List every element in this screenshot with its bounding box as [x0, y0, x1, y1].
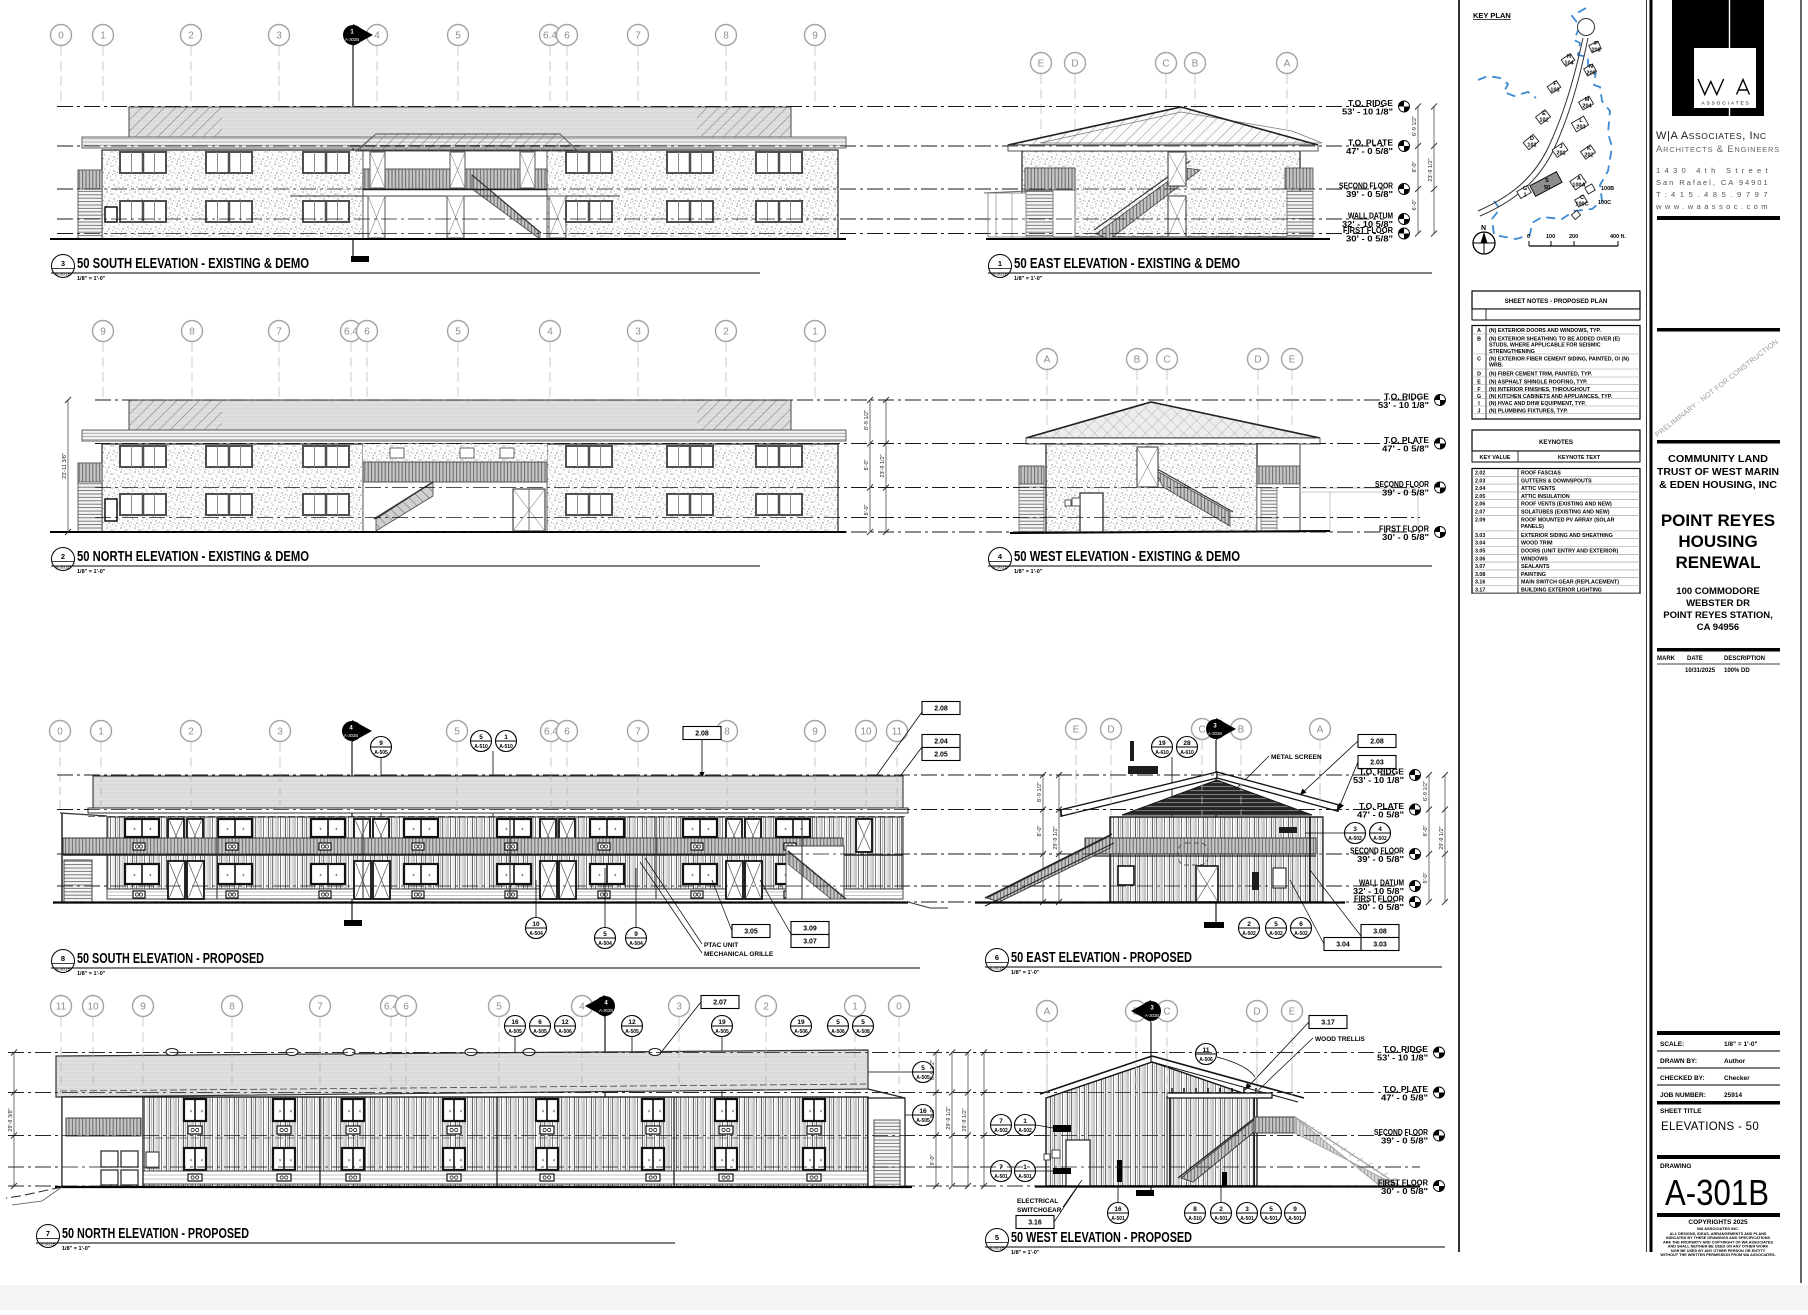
svg-text:7: 7: [635, 727, 641, 738]
svg-text:MECHANICAL GRILLE: MECHANICAL GRILLE: [704, 951, 774, 958]
svg-text:11: 11: [1203, 1047, 1210, 1054]
svg-text:D: D: [1071, 59, 1078, 70]
svg-text:Author: Author: [1724, 1058, 1746, 1065]
svg-text:A-506: A-506: [558, 1029, 572, 1035]
svg-text:10/31/2025: 10/31/2025: [1685, 668, 1716, 674]
svg-text:W|A ASSOCIATES, INC: W|A ASSOCIATES, INC: [1656, 130, 1767, 142]
svg-text:39' - 0 5/8": 39' - 0 5/8": [1357, 855, 1404, 864]
svg-text:2: 2: [1247, 921, 1251, 928]
svg-text:ATTIC INSULATION: ATTIC INSULATION: [1521, 494, 1570, 500]
svg-text:Checker: Checker: [1724, 1075, 1750, 1082]
svg-text:WRB.: WRB.: [1489, 363, 1504, 369]
svg-text:16: 16: [919, 1108, 927, 1115]
svg-text:203: 203: [1576, 125, 1585, 131]
svg-text:19: 19: [1158, 740, 1166, 747]
svg-text:50 NORTH ELEVATION - PROPOSED: 50 NORTH ELEVATION - PROPOSED: [62, 1226, 249, 1242]
svg-text:2: 2: [763, 1002, 769, 1013]
svg-text:MARK: MARK: [1657, 656, 1676, 662]
svg-text:A-501: A-501: [1018, 1174, 1032, 1180]
svg-text:8'-0": 8'-0": [864, 504, 870, 515]
svg-text:KEYNOTES: KEYNOTES: [1539, 439, 1573, 446]
svg-text:6: 6: [538, 1019, 542, 1026]
svg-text:2.04: 2.04: [934, 739, 948, 746]
svg-text:5: 5: [995, 1233, 999, 1242]
svg-text:2.07: 2.07: [1475, 510, 1485, 516]
svg-text:5: 5: [455, 31, 461, 42]
svg-text:COPYRIGHTS 2025: COPYRIGHTS 2025: [1688, 1219, 1748, 1226]
svg-text:E: E: [1073, 725, 1080, 736]
svg-text:A: A: [1577, 176, 1581, 182]
svg-text:50: 50: [1544, 185, 1550, 191]
svg-text:3.03: 3.03: [1373, 942, 1387, 949]
svg-text:3: 3: [1245, 1206, 1249, 1213]
svg-text:3.07: 3.07: [1475, 564, 1485, 570]
svg-text:A-502: A-502: [1269, 931, 1283, 937]
svg-text:202: 202: [1584, 153, 1593, 159]
svg-text:1/8" = 1'-0": 1/8" = 1'-0": [1724, 1041, 1758, 1048]
svg-text:G: G: [1477, 394, 1481, 400]
svg-text:(N) EXTERIOR DOORS AND WINDOWS: (N) EXTERIOR DOORS AND WINDOWS, TYP.: [1489, 328, 1601, 334]
svg-text:A-501: A-501: [1288, 1216, 1302, 1222]
svg-text:A-505: A-505: [916, 1118, 930, 1124]
svg-text:A-506: A-506: [794, 1029, 808, 1035]
svg-text:A-505: A-505: [374, 750, 388, 756]
svg-text:50 WEST ELEVATION - PROPOSED: 50 WEST ELEVATION - PROPOSED: [1011, 1230, 1192, 1246]
svg-text:1/8" = 1'-0": 1/8" = 1'-0": [77, 569, 106, 575]
svg-text:A-505: A-505: [508, 1029, 522, 1035]
svg-text:204: 204: [1582, 104, 1592, 110]
svg-text:A-510: A-510: [474, 744, 488, 750]
svg-text:1/8" = 1'-0": 1/8" = 1'-0": [1011, 970, 1040, 976]
svg-text:ELEVATIONS - 50: ELEVATIONS - 50: [1661, 1121, 1759, 1133]
svg-text:A-610: A-610: [1180, 750, 1194, 756]
svg-text:50 WEST ELEVATION - EXISTING &: 50 WEST ELEVATION - EXISTING & DEMO: [1014, 549, 1240, 565]
svg-text:100% DD: 100% DD: [1724, 668, 1750, 674]
svg-text:208: 208: [1591, 48, 1600, 54]
svg-text:9: 9: [1293, 1206, 1297, 1213]
svg-text:400 ft.: 400 ft.: [1610, 234, 1626, 240]
svg-text:6'-9 1/2": 6'-9 1/2": [1423, 781, 1429, 801]
svg-text:8: 8: [61, 954, 65, 963]
svg-text:A-501: A-501: [1111, 1216, 1125, 1222]
svg-text:WINDOWS: WINDOWS: [1521, 556, 1548, 562]
svg-text:E: E: [1542, 111, 1546, 117]
svg-text:A-302B: A-302B: [1208, 731, 1222, 736]
svg-text:7: 7: [999, 1118, 1003, 1125]
svg-text:39' - 0 5/8": 39' - 0 5/8": [1346, 190, 1393, 199]
svg-text:COMMUNITY LAND: COMMUNITY LAND: [1668, 453, 1768, 465]
svg-text:29'-9 1/2": 29'-9 1/2": [1439, 826, 1445, 849]
svg-text:ASSOCIATES: ASSOCIATES: [1701, 101, 1750, 107]
svg-text:A-508: A-508: [856, 1029, 870, 1035]
svg-text:A-510: A-510: [1188, 1216, 1202, 1222]
svg-text:2: 2: [61, 552, 65, 561]
svg-text:A-302B: A-302B: [345, 37, 359, 42]
svg-text:23'-9 1/2": 23'-9 1/2": [1428, 158, 1434, 181]
svg-text:2: 2: [188, 727, 194, 738]
svg-text:5: 5: [1269, 1206, 1273, 1213]
svg-text:PANELS): PANELS): [1521, 524, 1544, 530]
svg-text:A-504: A-504: [598, 941, 612, 947]
svg-text:DOORS (UNIT ENTRY AND EXTERIOR: DOORS (UNIT ENTRY AND EXTERIOR): [1521, 549, 1618, 555]
svg-text:A-505: A-505: [533, 1029, 547, 1035]
svg-text:2.05: 2.05: [1475, 494, 1485, 500]
svg-text:9: 9: [812, 727, 818, 738]
svg-text:11: 11: [56, 1002, 67, 1013]
svg-text:KEYNOTE TEXT: KEYNOTE TEXT: [1558, 455, 1601, 461]
svg-text:A-501: A-501: [1264, 1216, 1278, 1222]
svg-text:7: 7: [635, 31, 641, 42]
svg-text:23'-9 1/2": 23'-9 1/2": [880, 454, 886, 477]
svg-text:N: N: [1589, 64, 1593, 70]
svg-text:100C: 100C: [1598, 200, 1611, 206]
svg-text:39' - 0 5/8": 39' - 0 5/8": [1381, 1137, 1428, 1146]
svg-text:9'-0": 9'-0": [930, 1154, 936, 1165]
svg-text:5: 5: [496, 1002, 502, 1013]
svg-text:8: 8: [723, 31, 729, 42]
svg-text:2.04: 2.04: [1475, 486, 1485, 492]
svg-text:6'-0": 6'-0": [1412, 199, 1418, 210]
svg-text:0: 0: [57, 727, 63, 738]
svg-text:2.06: 2.06: [1475, 502, 1485, 508]
svg-text:53' - 10 1/8": 53' - 10 1/8": [1377, 1054, 1428, 1063]
svg-text:SHEET TITLE: SHEET TITLE: [1660, 1108, 1702, 1115]
svg-text:200: 200: [1569, 234, 1578, 240]
svg-text:9: 9: [140, 1002, 146, 1013]
svg-text:50 NORTH ELEVATION - EXISTING: 50 NORTH ELEVATION - EXISTING & DEMO: [77, 549, 309, 565]
svg-text:KEY VALUE: KEY VALUE: [1480, 455, 1511, 461]
svg-text:B: B: [1134, 355, 1141, 366]
svg-text:1/8" = 1'-0": 1/8" = 1'-0": [1014, 276, 1043, 282]
svg-text:3.16: 3.16: [1475, 580, 1485, 586]
svg-text:H: H: [1567, 54, 1571, 60]
svg-text:2.07: 2.07: [713, 1000, 727, 1007]
svg-text:9'-0": 9'-0": [1423, 872, 1429, 883]
svg-text:12: 12: [628, 1019, 636, 1026]
svg-text:2.08: 2.08: [934, 706, 948, 713]
svg-text:5: 5: [455, 327, 461, 338]
svg-text:A-501: A-501: [1214, 1216, 1228, 1222]
svg-text:2.09: 2.09: [1475, 517, 1485, 523]
svg-text:5: 5: [861, 1019, 865, 1026]
svg-text:TRUST OF WEST MARIN: TRUST OF WEST MARIN: [1657, 466, 1779, 478]
svg-text:1: 1: [1023, 1118, 1027, 1125]
svg-text:25914: 25914: [1724, 1092, 1742, 1099]
svg-text:8'-0": 8'-0": [930, 1107, 936, 1118]
svg-text:19: 19: [718, 1019, 726, 1026]
svg-text:B: B: [1477, 337, 1481, 343]
svg-text:100: 100: [1546, 234, 1555, 240]
svg-text:SOLATUBES (EXISTING AND NEW): SOLATUBES (EXISTING AND NEW): [1521, 510, 1610, 516]
svg-text:9: 9: [379, 740, 383, 747]
svg-text:1430 4th Street: 1430 4th Street: [1656, 166, 1769, 175]
svg-text:3: 3: [635, 327, 641, 338]
svg-text:PAINTING: PAINTING: [1521, 572, 1546, 578]
svg-text:A-301B: A-301B: [1665, 1172, 1769, 1213]
svg-text:(N) INTERIOR FINISHES, THROUGH: (N) INTERIOR FINISHES, THROUGHOUT: [1489, 387, 1591, 393]
svg-text:53' - 10 1/8": 53' - 10 1/8": [1342, 108, 1393, 117]
svg-text:ATTIC VENTS: ATTIC VENTS: [1521, 486, 1556, 492]
svg-text:5: 5: [1274, 921, 1278, 928]
svg-text:DATE: DATE: [1687, 656, 1703, 662]
svg-text:3: 3: [61, 259, 65, 268]
svg-text:N: N: [1481, 225, 1486, 232]
svg-text:9: 9: [634, 931, 638, 938]
svg-text:7: 7: [46, 1229, 50, 1238]
svg-text:D: D: [1530, 136, 1534, 142]
svg-text:BUILDING EXTERIOR LIGHTING: BUILDING EXTERIOR LIGHTING: [1521, 588, 1602, 594]
svg-text:50 EAST ELEVATION - EXISTING &: 50 EAST ELEVATION - EXISTING & DEMO: [1014, 256, 1240, 272]
svg-text:6: 6: [564, 727, 570, 738]
svg-text:San Rafael, CA 94901: San Rafael, CA 94901: [1656, 178, 1769, 187]
svg-text:3.17: 3.17: [1475, 588, 1485, 594]
svg-text:5: 5: [603, 931, 607, 938]
svg-text:8'-9 1/2": 8'-9 1/2": [1037, 782, 1043, 802]
svg-text:29'-9 1/2": 29'-9 1/2": [962, 1108, 968, 1131]
svg-text:CHECKED BY:: CHECKED BY:: [1660, 1075, 1705, 1082]
svg-text:47' - 0 5/8": 47' - 0 5/8": [1381, 1094, 1428, 1103]
svg-text:ARCHITECTS & ENGINEERS: ARCHITECTS & ENGINEERS: [1656, 144, 1780, 155]
svg-text:A-301B: A-301B: [55, 967, 70, 972]
svg-text:A: A: [1044, 355, 1051, 366]
svg-text:A-501: A-501: [1240, 1216, 1254, 1222]
svg-text:1: 1: [812, 327, 818, 338]
svg-text:ROOF VENTS (EXISTING AND NEW): ROOF VENTS (EXISTING AND NEW): [1521, 502, 1612, 508]
svg-text:A-302B: A-302B: [599, 1008, 613, 1013]
svg-text:S: S: [1545, 178, 1549, 184]
svg-text:J: J: [1559, 144, 1562, 150]
svg-text:3: 3: [1353, 826, 1357, 833]
svg-text:1/8" = 1'-0": 1/8" = 1'-0": [77, 971, 106, 977]
svg-text:(N) EXTERIOR SHEATHING TO BE A: (N) EXTERIOR SHEATHING TO BE ADDED OVER …: [1489, 337, 1620, 343]
svg-text:3.05: 3.05: [1475, 549, 1485, 555]
svg-text:3.03: 3.03: [1475, 533, 1485, 539]
svg-text:WITHOUT THE WRITTEN PERMISSION: WITHOUT THE WRITTEN PERMISSION FROM WA A…: [1660, 1253, 1775, 1257]
svg-text:50 EAST ELEVATION - PROPOSED: 50 EAST ELEVATION - PROPOSED: [1011, 950, 1192, 966]
svg-text:EXTERIOR SIDING AND SHEATHING: EXTERIOR SIDING AND SHEATHING: [1521, 533, 1613, 539]
svg-text:7: 7: [317, 1002, 323, 1013]
svg-text:205: 205: [1586, 71, 1595, 77]
svg-text:A-301B: A-301B: [55, 272, 70, 277]
svg-text:3: 3: [277, 727, 283, 738]
svg-text:A: A: [1044, 1007, 1051, 1018]
svg-text:53' - 10 1/8": 53' - 10 1/8": [1378, 401, 1429, 410]
svg-text:METAL SCREEN: METAL SCREEN: [1271, 754, 1322, 761]
svg-text:47' - 0 5/8": 47' - 0 5/8": [1346, 147, 1393, 156]
svg-text:A-504: A-504: [529, 931, 543, 937]
svg-text:10: 10: [860, 727, 872, 738]
svg-text:50 SOUTH ELEVATION - EXISTING: 50 SOUTH ELEVATION - EXISTING & DEMO: [77, 256, 309, 272]
svg-text:(N) EXTERIOR FIBER CEMENT SIDI: (N) EXTERIOR FIBER CEMENT SIDING, PAINTE…: [1489, 357, 1629, 363]
svg-text:8'-9 1/2": 8'-9 1/2": [864, 410, 870, 430]
svg-text:19: 19: [797, 1019, 805, 1026]
svg-text:8: 8: [1193, 1206, 1197, 1213]
svg-text:201: 201: [1556, 151, 1565, 157]
svg-text:A-504: A-504: [629, 941, 643, 947]
svg-text:K: K: [1587, 146, 1591, 152]
svg-text:A-502: A-502: [1373, 836, 1387, 842]
svg-text:WEBSTER DR: WEBSTER DR: [1686, 598, 1750, 609]
svg-text:A-301B: A-301B: [40, 1242, 55, 1247]
svg-text:2.08: 2.08: [1370, 739, 1384, 746]
svg-text:RENEWAL: RENEWAL: [1676, 553, 1761, 572]
svg-text:SWITCHGEAR: SWITCHGEAR: [1017, 1207, 1062, 1214]
svg-text:8: 8: [189, 327, 195, 338]
svg-text:4: 4: [374, 31, 380, 42]
svg-text:D: D: [1254, 355, 1261, 366]
svg-text:29'-9 1/2": 29'-9 1/2": [946, 1106, 952, 1129]
svg-text:2: 2: [1219, 1206, 1223, 1213]
svg-text:2.05: 2.05: [934, 752, 948, 759]
svg-text:1: 1: [504, 734, 508, 741]
svg-text:100B: 100B: [1601, 186, 1614, 192]
svg-text:A-301B: A-301B: [55, 565, 70, 570]
svg-text:B: B: [1238, 725, 1245, 736]
svg-text:A-502: A-502: [1348, 836, 1362, 842]
svg-text:HOUSING: HOUSING: [1678, 532, 1757, 551]
svg-text:D: D: [1107, 725, 1114, 736]
svg-text:50 SOUTH ELEVATION - PROPOSED: 50 SOUTH ELEVATION - PROPOSED: [77, 951, 264, 967]
svg-text:5: 5: [836, 1019, 840, 1026]
svg-text:102: 102: [1539, 118, 1548, 124]
svg-text:29'-9 3/8": 29'-9 3/8": [8, 1108, 14, 1131]
svg-text:9: 9: [812, 31, 818, 42]
svg-text:6: 6: [564, 31, 570, 42]
svg-text:12: 12: [561, 1019, 569, 1026]
svg-text:5: 5: [479, 734, 483, 741]
svg-text:4: 4: [547, 327, 553, 338]
svg-text:10: 10: [87, 1002, 99, 1013]
svg-text:1: 1: [998, 259, 1002, 268]
svg-text:6.4: 6.4: [543, 31, 557, 42]
svg-text:100C: 100C: [1575, 202, 1588, 208]
svg-text:3.07: 3.07: [803, 939, 817, 946]
svg-text:30' - 0 5/8": 30' - 0 5/8": [1382, 533, 1429, 542]
svg-text:30' - 0 5/8": 30' - 0 5/8": [1357, 903, 1404, 912]
svg-text:1: 1: [1023, 1164, 1027, 1171]
svg-text:23'-11 3/8": 23'-11 3/8": [62, 453, 68, 479]
svg-text:A-502: A-502: [1018, 1128, 1032, 1134]
svg-text:2.03: 2.03: [1370, 760, 1384, 767]
svg-text:30' - 0 5/8": 30' - 0 5/8": [1346, 235, 1393, 244]
svg-text:101: 101: [1527, 143, 1536, 149]
svg-text:6'-9 1/2": 6'-9 1/2": [1412, 116, 1418, 136]
svg-text:A-506: A-506: [831, 1029, 845, 1035]
svg-text:C: C: [1580, 195, 1584, 201]
svg-text:1: 1: [1523, 193, 1526, 199]
svg-text:A: A: [1477, 328, 1481, 334]
svg-text:C: C: [1198, 725, 1205, 736]
svg-text:(N) KITCHEN CABINETS AND APPLI: (N) KITCHEN CABINETS AND APPLIANCES, TYP…: [1489, 394, 1613, 400]
svg-text:STUDS, WHERE APPLICABLE FOR SE: STUDS, WHERE APPLICABLE FOR SEISMIC: [1489, 343, 1601, 349]
svg-text:A-301B: A-301B: [992, 565, 1007, 570]
svg-text:C: C: [1477, 357, 1481, 363]
svg-text:2.03: 2.03: [1475, 478, 1485, 484]
svg-text:A-505: A-505: [715, 1029, 729, 1035]
svg-text:ELECTRICAL: ELECTRICAL: [1017, 1198, 1058, 1205]
svg-text:1/8" = 1'-0": 1/8" = 1'-0": [77, 276, 106, 282]
svg-text:0: 0: [896, 1002, 902, 1013]
svg-text:A-302B: A-302B: [1145, 1013, 1159, 1018]
svg-text:3: 3: [276, 31, 282, 42]
svg-text:3: 3: [676, 1002, 682, 1013]
svg-text:5: 5: [454, 727, 460, 738]
svg-text:C: C: [1163, 1007, 1170, 1018]
svg-text:DRAWN BY:: DRAWN BY:: [1660, 1058, 1697, 1065]
svg-text:A-502: A-502: [1242, 931, 1256, 937]
svg-text:WOOD TRIM: WOOD TRIM: [1521, 541, 1553, 547]
svg-text:47' - 0 5/8": 47' - 0 5/8": [1382, 445, 1429, 454]
svg-text:1: 1: [98, 727, 104, 738]
svg-text:A-610: A-610: [1155, 750, 1169, 756]
svg-text:0: 0: [58, 31, 64, 42]
svg-text:1: 1: [100, 31, 106, 42]
svg-text:2: 2: [188, 31, 194, 42]
svg-text:PTAC UNIT: PTAC UNIT: [704, 942, 738, 949]
svg-text:39' - 0 5/8": 39' - 0 5/8": [1382, 489, 1429, 498]
svg-text:6: 6: [364, 327, 370, 338]
svg-text:DRAWING: DRAWING: [1660, 1163, 1691, 1170]
svg-text:8'-0": 8'-0": [1037, 825, 1043, 836]
svg-text:4: 4: [1378, 826, 1382, 833]
svg-text:A-505: A-505: [916, 1075, 930, 1081]
svg-text:SEALANTS: SEALANTS: [1521, 564, 1550, 570]
svg-text:1: 1: [852, 1002, 858, 1013]
svg-text:2: 2: [723, 327, 729, 338]
svg-text:6: 6: [403, 1002, 409, 1013]
svg-text:G: G: [1523, 186, 1527, 192]
svg-text:MAIN SWITCH GEAR (REPLACEMENT): MAIN SWITCH GEAR (REPLACEMENT): [1521, 580, 1619, 586]
svg-text:3.16: 3.16: [1028, 1220, 1042, 1227]
svg-text:8: 8: [229, 1002, 235, 1013]
svg-text:100 COMMODORE: 100 COMMODORE: [1676, 586, 1759, 597]
svg-text:SCALE:: SCALE:: [1660, 1041, 1684, 1048]
svg-text:8'-9 1/2": 8'-9 1/2": [930, 1060, 936, 1080]
svg-text:3.06: 3.06: [1475, 556, 1485, 562]
svg-text:B: B: [1192, 59, 1199, 70]
svg-text:A-301B: A-301B: [989, 966, 1004, 971]
svg-text:6: 6: [1299, 921, 1303, 928]
svg-text:JOB NUMBER:: JOB NUMBER:: [1660, 1092, 1706, 1099]
svg-text:A-502: A-502: [1294, 931, 1308, 937]
svg-text:2.02: 2.02: [1475, 471, 1485, 477]
svg-text:E: E: [1289, 355, 1296, 366]
svg-text:3.08: 3.08: [1475, 572, 1485, 578]
svg-text:D: D: [1477, 372, 1481, 378]
svg-text:6: 6: [995, 953, 999, 962]
svg-text:8'-0": 8'-0": [864, 459, 870, 470]
svg-text:1/8" = 1'-0": 1/8" = 1'-0": [62, 1246, 91, 1252]
svg-text:POINT REYES: POINT REYES: [1661, 511, 1775, 530]
svg-text:M: M: [1585, 97, 1590, 103]
svg-text:A: A: [1317, 725, 1324, 736]
svg-text:103: 103: [1550, 88, 1559, 94]
svg-text:100A: 100A: [1572, 183, 1585, 189]
svg-text:POINT REYES STATION,: POINT REYES STATION,: [1663, 610, 1772, 621]
svg-text:29'-9 1/2": 29'-9 1/2": [1053, 826, 1059, 849]
svg-text:KEY PLAN: KEY PLAN: [1473, 11, 1511, 20]
svg-text:WOOD TRELLIS: WOOD TRELLIS: [1315, 1036, 1365, 1043]
svg-text:7: 7: [276, 327, 282, 338]
svg-text:28: 28: [1183, 740, 1191, 747]
svg-text:9: 9: [100, 327, 106, 338]
svg-text:3.05: 3.05: [744, 929, 758, 936]
svg-text:2.08: 2.08: [695, 731, 709, 738]
svg-text:ROOF MOUNTED PV ARRAY (SOLAR: ROOF MOUNTED PV ARRAY (SOLAR: [1521, 517, 1615, 523]
svg-text:3.04: 3.04: [1336, 942, 1350, 949]
svg-text:A-502: A-502: [994, 1128, 1008, 1134]
svg-text:A-501: A-501: [994, 1174, 1008, 1180]
